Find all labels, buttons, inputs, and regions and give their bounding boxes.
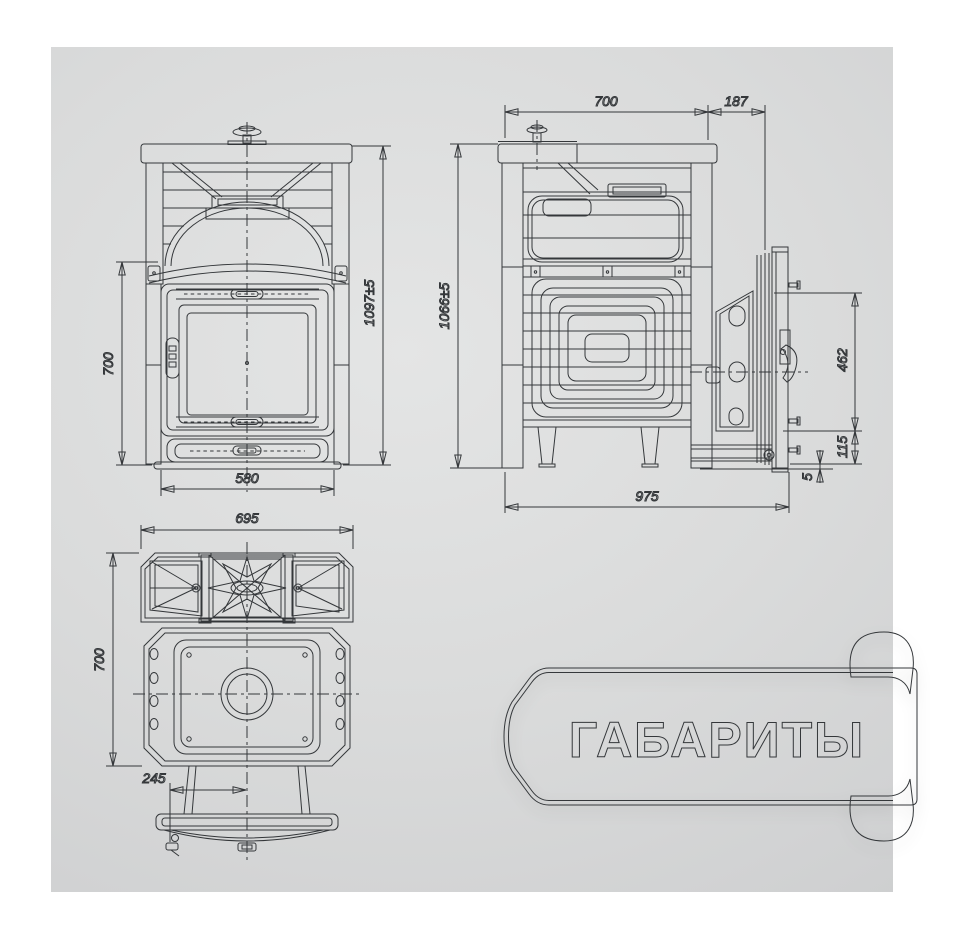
side-view: 700 187 1066±5 462 115 5 975 — [436, 93, 862, 513]
gabarity-ribbon: ГАБАРИТЫ — [504, 632, 917, 841]
top-dimensions: 695 700 245 — [91, 510, 353, 842]
ribbon-fold-top — [850, 632, 913, 694]
dim-front-door-height: 700 — [100, 352, 116, 376]
dim-side-total-height: 1066±5 — [436, 282, 452, 329]
ribbon-fold-bottom — [850, 779, 913, 841]
side-rails-upper — [523, 168, 691, 238]
dim-front-total-height: 1097±5 — [361, 279, 377, 326]
door-screws — [789, 281, 800, 454]
legs — [538, 427, 659, 467]
dim-side-body-depth: 700 — [594, 93, 618, 109]
top-view: 695 700 245 — [91, 510, 361, 862]
dim-side-total-depth: 975 — [635, 488, 659, 504]
open-door — [690, 247, 808, 472]
door-handle — [166, 338, 179, 378]
dim-side-floor-gap: 5 — [799, 473, 815, 481]
ribbon-label: ГАБАРИТЫ — [569, 712, 865, 768]
dim-top-tunnel-offset: 245 — [141, 770, 166, 786]
technical-drawing: 700 1097±5 580 — [0, 0, 970, 943]
heat-channels — [532, 279, 682, 417]
side-rails-lower — [523, 277, 691, 403]
product-image-page: 700 1097±5 580 — [0, 0, 970, 943]
dome — [165, 202, 329, 266]
dim-top-width: 695 — [235, 510, 259, 526]
flue-and-tank — [528, 163, 683, 262]
dim-front-width: 580 — [235, 470, 259, 486]
dim-side-door-height: 462 — [834, 348, 850, 372]
bottom-duct — [691, 445, 772, 461]
front-view: 700 1097±5 580 — [100, 122, 391, 496]
top-shelf-side — [498, 144, 717, 163]
dim-top-depth: 700 — [91, 648, 107, 672]
dim-side-door-depth: 187 — [724, 93, 749, 109]
dim-side-door-bottom: 115 — [834, 436, 850, 459]
